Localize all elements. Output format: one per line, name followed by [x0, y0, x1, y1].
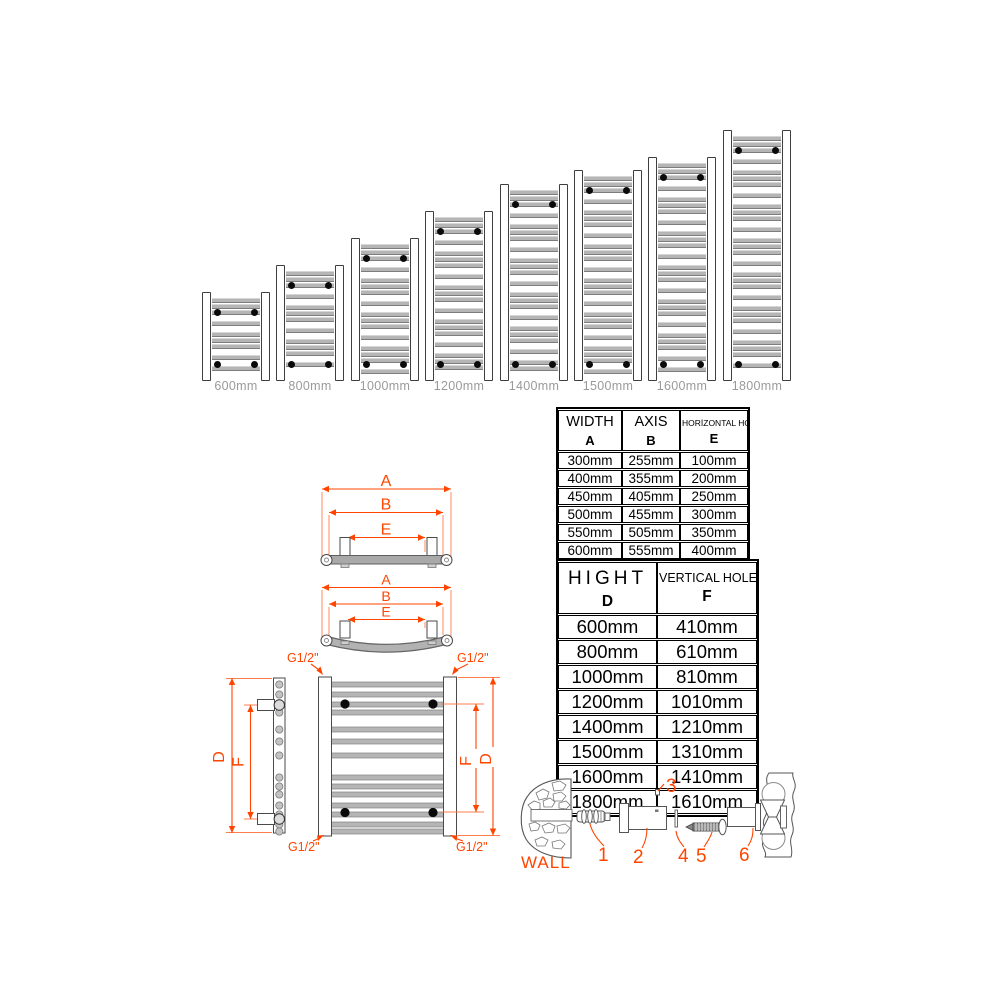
towel-bar [658, 333, 706, 338]
bracket [340, 621, 350, 638]
towel-bar [733, 204, 781, 209]
part-number-6: 6 [739, 845, 750, 866]
table-cell: 1210mm [657, 715, 757, 739]
table-cell: 300mm [680, 506, 748, 523]
towel-bar [733, 272, 781, 277]
towel-bar [286, 339, 334, 344]
towel-bar [286, 345, 334, 350]
mount-hole [251, 309, 258, 316]
part-bracket-arm [728, 773, 796, 857]
towel-bar [361, 352, 409, 357]
mount-hole [772, 147, 779, 154]
towel-bar [733, 216, 781, 221]
mount-hole [735, 361, 742, 368]
towel-bar [658, 197, 706, 202]
side-rail [559, 184, 568, 381]
towel-bar [510, 332, 558, 337]
table-cell: 400mm [680, 542, 748, 559]
radiator-height-label: 1600mm [644, 379, 720, 393]
radiator [723, 134, 791, 377]
mount-hole [772, 361, 779, 368]
table-cell: 810mm [657, 665, 757, 689]
towel-bar [658, 220, 706, 225]
towel-bar [361, 318, 409, 323]
towel-bar [733, 306, 781, 311]
table-cell: 300mm [558, 452, 622, 469]
table-cell: 355mm [622, 470, 680, 487]
towel-bar [733, 159, 781, 164]
radiator-height-label: 1200mm [421, 379, 497, 393]
towel-bar [658, 231, 706, 236]
table-cell: 100mm [680, 452, 748, 469]
table-row: 1400mm1210mm [558, 715, 757, 739]
towel-bar [584, 216, 632, 221]
towel-bar [733, 318, 781, 323]
side-rail [633, 170, 642, 381]
towel-bar [733, 210, 781, 215]
towel-bar [286, 311, 334, 316]
towel-bar [332, 803, 444, 808]
towel-bar [361, 267, 409, 272]
table-row: 300mm255mm100mm [558, 452, 748, 469]
radiator-height-label: 1500mm [570, 379, 646, 393]
towel-bar [361, 312, 409, 317]
towel-bar [361, 324, 409, 329]
towel-bar [658, 305, 706, 310]
mount-hole [474, 361, 481, 368]
mount-hole [400, 255, 407, 262]
wall-section: WALL [521, 779, 572, 872]
thread-size-label: G1/2" [288, 840, 320, 854]
towel-bar [658, 277, 706, 282]
pipe-end [321, 635, 332, 646]
dim-width-a: A [381, 572, 391, 588]
table-row: 400mm355mm200mm [558, 470, 748, 487]
mount-hole [288, 282, 295, 289]
towel-bar [510, 247, 558, 252]
table-cell: 400mm [558, 470, 622, 487]
part-sleeve [620, 804, 667, 833]
mount-hole [325, 282, 332, 289]
towel-bar [584, 324, 632, 329]
towel-bar [584, 199, 632, 204]
towel-bar [733, 329, 781, 334]
towel-bar [332, 775, 444, 780]
radiator [351, 242, 419, 377]
towel-bar [332, 727, 444, 732]
dim-axis-b: B [381, 588, 390, 604]
towel-bar [658, 288, 706, 293]
towel-bar [435, 251, 483, 256]
towel-bar [733, 261, 781, 266]
towel-bar [658, 299, 706, 304]
table-cell: 455mm [622, 506, 680, 523]
radiator-height-label: 1800mm [719, 379, 795, 393]
towel-bar [332, 710, 444, 715]
table-cell: 255mm [622, 452, 680, 469]
table-cell: 1200mm [558, 690, 657, 714]
column-header: HIGHTD [558, 562, 657, 614]
towel-bar [584, 352, 632, 357]
front-view: F D [319, 677, 501, 836]
side-rail [723, 130, 732, 381]
mount-hole [437, 228, 444, 235]
towel-bar [332, 682, 444, 687]
towel-bar [658, 243, 706, 248]
radiator [202, 296, 270, 377]
towel-bar [584, 312, 632, 317]
towel-bar [584, 233, 632, 238]
mount-hole [428, 699, 437, 708]
table-cell: 250mm [680, 488, 748, 505]
towel-bar [658, 237, 706, 242]
mount-hole [340, 808, 349, 817]
towel-bar [658, 345, 706, 350]
radiator [500, 188, 568, 377]
mount-hole [325, 361, 332, 368]
mount-hole [214, 361, 221, 368]
towel-bar [584, 267, 632, 272]
towel-bar [510, 190, 558, 195]
towel-bar [733, 238, 781, 243]
towel-bar [658, 271, 706, 276]
towel-bar [658, 186, 706, 191]
thread-labels-top: G1/2" G1/2" [287, 651, 489, 675]
towel-bar [584, 176, 632, 181]
mount-hole [735, 147, 742, 154]
flat-crossbar [322, 556, 451, 565]
towel-bar [510, 298, 558, 303]
side-rail [500, 184, 509, 381]
wall-bracket [258, 700, 275, 711]
towel-bar [510, 326, 558, 331]
towel-bar [584, 346, 632, 351]
mount-hole [428, 808, 437, 817]
side-rail [335, 265, 344, 381]
table-cell: 1500mm [558, 740, 657, 764]
column-header: WIDTHA [558, 410, 622, 451]
mount-hole [288, 361, 295, 368]
side-view: D F [211, 678, 285, 835]
part-number-3: 3 [666, 776, 677, 797]
towel-bar [361, 335, 409, 340]
towel-bar [733, 278, 781, 283]
towel-bar [584, 210, 632, 215]
radiator [276, 269, 344, 377]
table-row: 500mm455mm300mm [558, 506, 748, 523]
towel-bar [332, 753, 444, 758]
mount-hole [549, 361, 556, 368]
towel-bar [510, 304, 558, 309]
towel-bar [435, 217, 483, 222]
towel-bar [658, 254, 706, 259]
mount-hole [660, 361, 667, 368]
towel-bar [212, 332, 260, 337]
header-row: HIGHTDVERTICAL HOLESF [558, 562, 757, 614]
dim-axis-b: B [381, 497, 392, 514]
towel-bar [332, 784, 444, 789]
dim-holes-f: F [458, 756, 475, 766]
left-rail [319, 677, 332, 836]
mount-hole [251, 361, 258, 368]
towel-bar [584, 335, 632, 340]
mount-hole [363, 361, 370, 368]
part-wall-plug [577, 810, 610, 824]
towel-bar [435, 291, 483, 296]
towel-bar [510, 230, 558, 235]
pipe-end [442, 635, 453, 646]
towel-bar [435, 297, 483, 302]
towel-bar [510, 270, 558, 275]
table-cell: 1310mm [657, 740, 757, 764]
towel-bar [584, 256, 632, 261]
towel-bar [510, 281, 558, 286]
towel-bar [332, 829, 444, 834]
table-row: 600mm555mm400mm [558, 542, 748, 559]
towel-bar [361, 369, 409, 374]
towel-bar [584, 250, 632, 255]
tube-section [276, 783, 283, 790]
towel-bar [510, 258, 558, 263]
towel-bar [658, 203, 706, 208]
side-rail [574, 170, 583, 381]
towel-bar [733, 340, 781, 345]
towel-bar [510, 213, 558, 218]
towel-bar [286, 271, 334, 276]
side-rail [261, 292, 270, 381]
mount-hole [623, 187, 630, 194]
towel-bar [361, 278, 409, 283]
tube-section [276, 802, 283, 809]
mount-hole [549, 201, 556, 208]
table-cell: 410mm [657, 615, 757, 639]
column-header: AXISB [622, 410, 680, 451]
table-cell: 555mm [622, 542, 680, 559]
towel-bar [584, 278, 632, 283]
table-cell: 405mm [622, 488, 680, 505]
side-rail [648, 157, 657, 381]
table-cell: 1400mm [558, 715, 657, 739]
towel-bar [361, 346, 409, 351]
table-cell: 350mm [680, 524, 748, 541]
mount-hole [340, 699, 349, 708]
tube-section [276, 791, 283, 798]
towel-bar [332, 822, 444, 827]
wall-label: WALL [521, 853, 571, 872]
towel-bar [584, 222, 632, 227]
bracket [427, 621, 437, 638]
dim-holes-e: E [381, 604, 390, 620]
side-rail [202, 292, 211, 381]
side-rail [410, 238, 419, 381]
radiator [425, 215, 493, 377]
towel-bar [361, 244, 409, 249]
towel-bar [435, 353, 483, 358]
towel-bar [286, 294, 334, 299]
table-cell: 450mm [558, 488, 622, 505]
header-row: WIDTHAAXISBHORİZONTAL HOLESE [558, 410, 748, 451]
thread-size-label: G1/2" [287, 651, 319, 665]
towel-bar [658, 322, 706, 327]
radiator-height-label: 1000mm [347, 379, 423, 393]
towel-bar [212, 344, 260, 349]
towel-bar [733, 176, 781, 181]
mount-hole [623, 361, 630, 368]
table-row: 600mm410mm [558, 615, 757, 639]
width-spec-table: WIDTHAAXISBHORİZONTAL HOLESE 300mm255mm1… [556, 407, 750, 562]
towel-bar [510, 292, 558, 297]
mount-hole [512, 361, 519, 368]
mount-hole [214, 309, 221, 316]
part-number-1: 1 [598, 845, 609, 866]
towel-bar [733, 227, 781, 232]
tube-section [276, 774, 283, 781]
towel-bar [435, 342, 483, 347]
towel-bar [435, 263, 483, 268]
side-rail [782, 130, 791, 381]
towel-bar [435, 257, 483, 262]
towel-bar [332, 792, 444, 797]
table-row: 1200mm1010mm [558, 690, 757, 714]
tube-section [276, 681, 283, 688]
towel-bar [510, 338, 558, 343]
top-view-curved: A B E [321, 572, 453, 649]
towel-bar [584, 301, 632, 306]
dim-height-d: D [478, 753, 495, 765]
towel-bar [733, 193, 781, 198]
towel-bar [361, 301, 409, 306]
dimension-diagrams: A B E A [205, 465, 535, 880]
table-cell: 600mm [558, 615, 657, 639]
mount-hole [400, 361, 407, 368]
towel-bar [733, 170, 781, 175]
dim-holes-f: F [231, 757, 248, 767]
table-cell: 1000mm [558, 665, 657, 689]
tube-section [276, 691, 283, 698]
towel-bar [435, 308, 483, 313]
mount-hole [586, 361, 593, 368]
tube-section [276, 738, 283, 745]
table-cell: 200mm [680, 470, 748, 487]
towel-bar [212, 298, 260, 303]
towel-bar [733, 312, 781, 317]
towel-bar [435, 240, 483, 245]
bracket [340, 538, 350, 557]
thread-size-label: G1/2" [457, 651, 489, 665]
drill-hole [531, 810, 572, 822]
dim-holes-e: E [381, 522, 392, 539]
tube-section [276, 752, 283, 759]
wall-bracket [258, 814, 275, 825]
mount-hole [512, 201, 519, 208]
mount-hole [474, 228, 481, 235]
radiator-height-label: 1400mm [496, 379, 572, 393]
towel-bar [733, 284, 781, 289]
towel-bar [435, 319, 483, 324]
table-cell: 505mm [622, 524, 680, 541]
towel-bar [733, 182, 781, 187]
mount-hole [697, 361, 704, 368]
towel-bar [733, 352, 781, 357]
mount-hole [437, 361, 444, 368]
radiator-height-label: 600mm [198, 379, 274, 393]
towel-bar [332, 692, 444, 697]
table-cell: 600mm [558, 542, 622, 559]
towel-bar [584, 369, 632, 374]
mount-hole [660, 174, 667, 181]
table-cell: 500mm [558, 506, 622, 523]
column-header: VERTICAL HOLESF [657, 562, 757, 614]
towel-bar [584, 290, 632, 295]
table-cell: 550mm [558, 524, 622, 541]
table-row: 550mm505mm350mm [558, 524, 748, 541]
part-number-5: 5 [696, 846, 707, 867]
table-row: 1500mm1310mm [558, 740, 757, 764]
towel-bar [361, 284, 409, 289]
radiator [648, 161, 716, 377]
mounting-hardware-diagram: WALL [515, 770, 810, 878]
towel-bar [584, 284, 632, 289]
towel-bar [435, 325, 483, 330]
side-rail [707, 157, 716, 381]
thread-labels-bottom: G1/2" G1/2" [288, 835, 488, 854]
thread-size-label: G1/2" [456, 840, 488, 854]
side-rail [351, 238, 360, 381]
towel-bar [435, 274, 483, 279]
side-rail [484, 211, 493, 381]
towel-bar [733, 250, 781, 255]
mount-hole [363, 255, 370, 262]
radiator [574, 174, 642, 377]
column-header: HORİZONTAL HOLESE [680, 410, 748, 451]
side-rail [276, 265, 285, 381]
pipe-end [321, 555, 332, 566]
radiator-height-label: 800mm [272, 379, 348, 393]
pipe-end [441, 555, 452, 566]
towel-bar [658, 339, 706, 344]
table-row: 1000mm810mm [558, 665, 757, 689]
towel-bar [658, 209, 706, 214]
towel-bar [584, 244, 632, 249]
towel-bar [286, 317, 334, 322]
towel-bar [510, 236, 558, 241]
towel-bar [510, 349, 558, 354]
tube-section [276, 726, 283, 733]
radiator-size-chart: 600mm800mm1000mm1200mm1400mm1500mm1600mm… [202, 128, 806, 398]
radiator-spec-sheet: 600mm800mm1000mm1200mm1400mm1500mm1600mm… [0, 0, 1000, 1000]
table-cell: 610mm [657, 640, 757, 664]
towel-bar [212, 321, 260, 326]
towel-bar [212, 338, 260, 343]
side-rail [425, 211, 434, 381]
mount-hole [586, 187, 593, 194]
bracket [427, 538, 437, 557]
table-row: 800mm610mm [558, 640, 757, 664]
towel-bar [584, 318, 632, 323]
towel-bar [510, 264, 558, 269]
top-view-flat: A B E [321, 473, 452, 568]
towel-bar [332, 739, 444, 744]
towel-bar [361, 290, 409, 295]
towel-bar [658, 163, 706, 168]
dim-height-d: D [211, 751, 228, 763]
towel-bar [733, 295, 781, 300]
part-number-2: 2 [633, 847, 644, 868]
part-number-4: 4 [678, 846, 689, 867]
mount-hole [697, 174, 704, 181]
tube-section [276, 828, 283, 835]
towel-bar [212, 355, 260, 360]
